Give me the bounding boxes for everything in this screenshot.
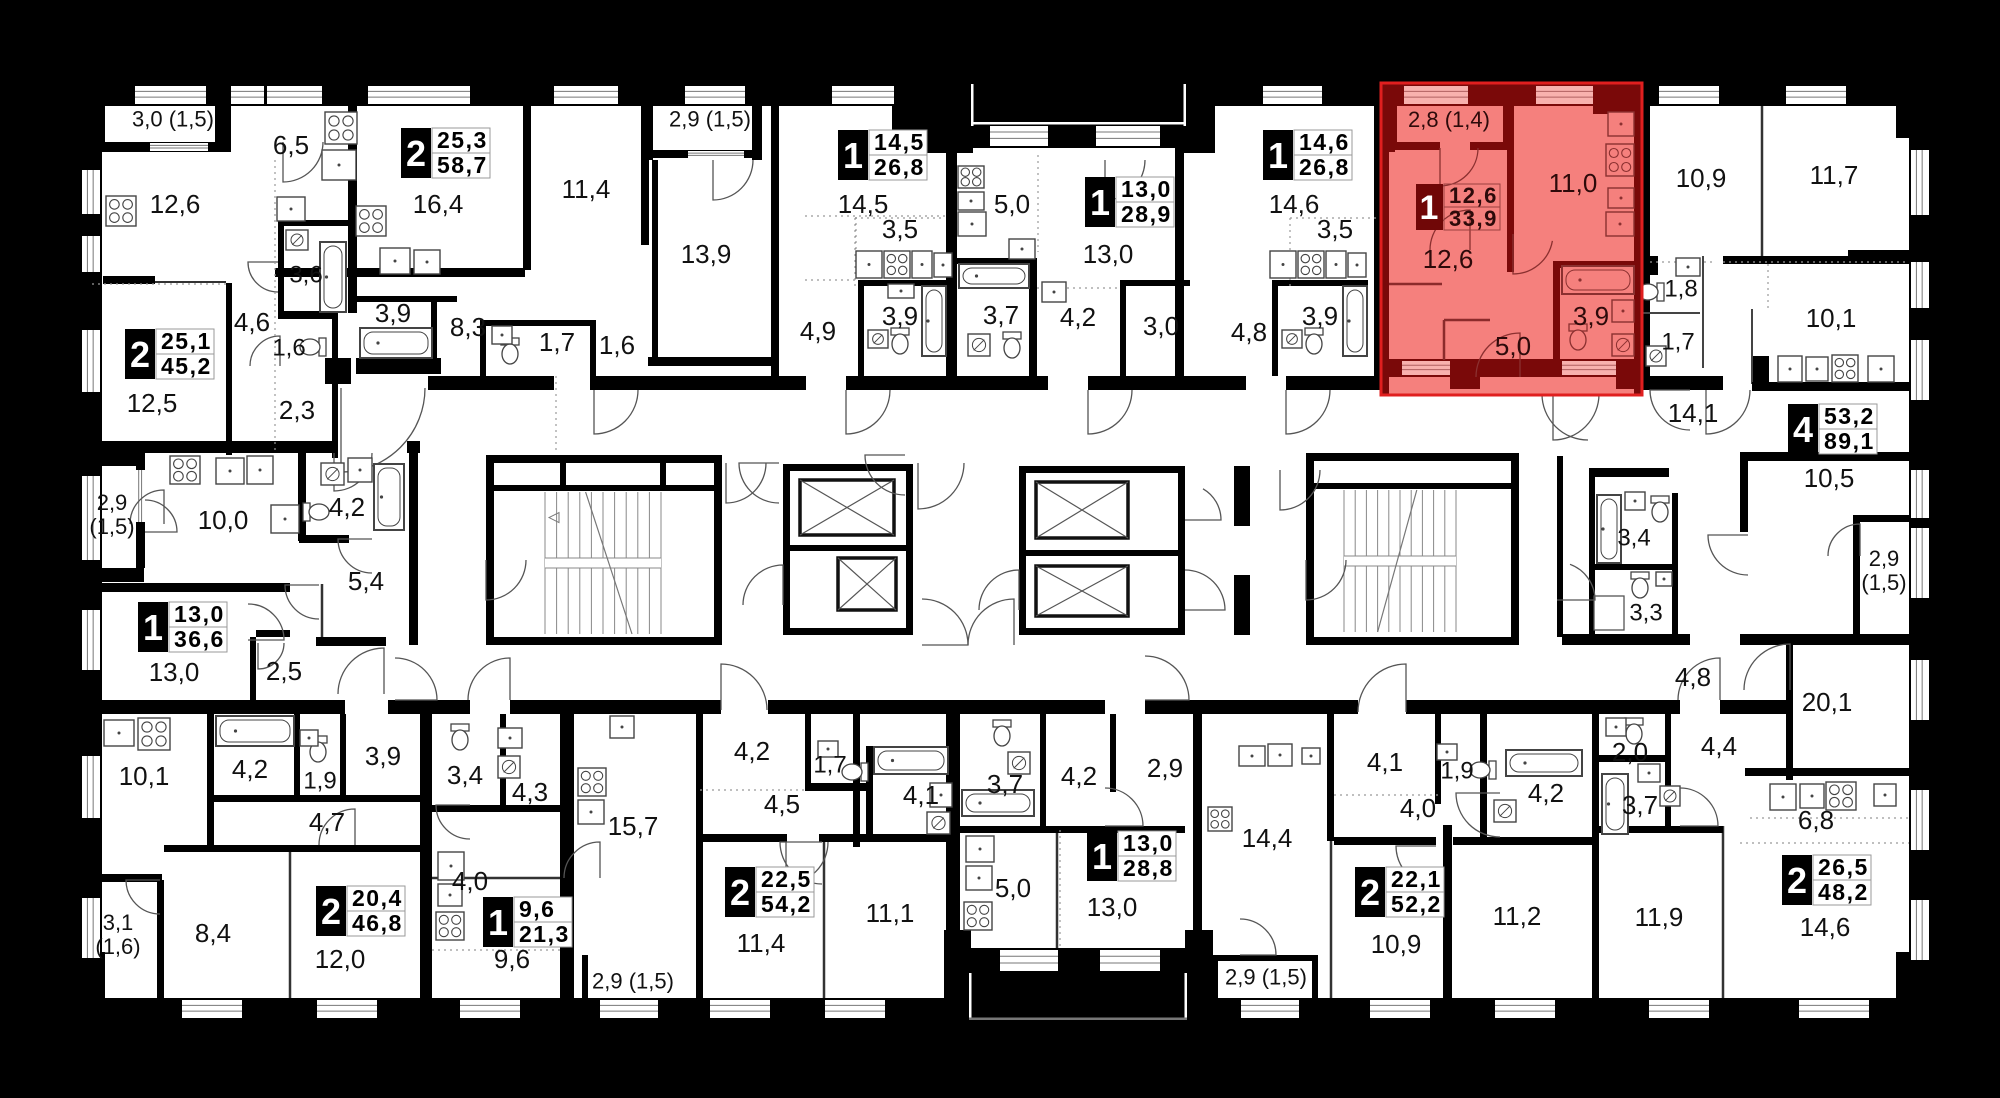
svg-text:12,0: 12,0 <box>315 944 366 974</box>
svg-text:48,2: 48,2 <box>1818 879 1869 905</box>
svg-text:22,5: 22,5 <box>761 866 812 892</box>
svg-text:2,9: 2,9 <box>1147 753 1183 783</box>
svg-text:1,7: 1,7 <box>539 327 575 357</box>
svg-text:(1,6): (1,6) <box>95 934 140 959</box>
svg-text:4,6: 4,6 <box>234 307 270 337</box>
svg-text:2,8 (1,4): 2,8 (1,4) <box>1408 107 1490 132</box>
svg-text:1,7: 1,7 <box>813 751 846 778</box>
svg-text:3,9: 3,9 <box>1302 301 1338 331</box>
svg-text:5,0: 5,0 <box>994 189 1030 219</box>
svg-text:1: 1 <box>1092 836 1112 877</box>
svg-text:14,6: 14,6 <box>1800 912 1851 942</box>
svg-text:13,9: 13,9 <box>681 239 732 269</box>
svg-text:4,7: 4,7 <box>309 807 345 837</box>
svg-text:5,0: 5,0 <box>1495 331 1531 361</box>
svg-text:4,2: 4,2 <box>1061 761 1097 791</box>
svg-text:4,1: 4,1 <box>903 780 939 810</box>
svg-text:5,0: 5,0 <box>995 873 1031 903</box>
svg-text:2: 2 <box>1360 872 1380 913</box>
svg-text:3,1: 3,1 <box>103 910 134 935</box>
svg-text:3,9: 3,9 <box>882 301 918 331</box>
svg-text:10,1: 10,1 <box>119 761 170 791</box>
svg-text:13,0: 13,0 <box>1083 239 1134 269</box>
svg-text:13,0: 13,0 <box>149 657 200 687</box>
svg-text:1: 1 <box>143 607 163 648</box>
svg-text:20,1: 20,1 <box>1802 687 1853 717</box>
svg-text:10,0: 10,0 <box>198 505 249 535</box>
svg-text:89,1: 89,1 <box>1824 428 1875 454</box>
svg-text:20,4: 20,4 <box>352 885 403 911</box>
svg-text:45,2: 45,2 <box>161 353 212 379</box>
svg-text:3,9: 3,9 <box>365 741 401 771</box>
svg-text:1: 1 <box>843 135 863 176</box>
svg-text:6,5: 6,5 <box>273 130 309 160</box>
svg-text:4,5: 4,5 <box>764 789 800 819</box>
svg-text:10,9: 10,9 <box>1371 929 1422 959</box>
svg-text:2,9: 2,9 <box>1869 546 1900 571</box>
svg-text:1: 1 <box>1090 182 1110 223</box>
svg-text:26,8: 26,8 <box>874 154 925 180</box>
svg-text:1,6: 1,6 <box>272 334 305 361</box>
svg-text:11,2: 11,2 <box>1493 901 1542 931</box>
svg-text:22,1: 22,1 <box>1391 866 1442 892</box>
svg-text:3,0 (1,5): 3,0 (1,5) <box>132 107 214 132</box>
svg-text:3,9: 3,9 <box>1573 301 1609 331</box>
svg-text:3,9: 3,9 <box>375 298 411 328</box>
svg-text:4,1: 4,1 <box>1367 747 1403 777</box>
svg-text:10,9: 10,9 <box>1676 163 1727 193</box>
svg-text:4: 4 <box>1793 409 1813 450</box>
svg-text:1: 1 <box>1268 135 1288 176</box>
svg-text:4,8: 4,8 <box>1675 662 1711 692</box>
svg-text:11,4: 11,4 <box>737 928 786 958</box>
svg-text:53,2: 53,2 <box>1824 403 1875 429</box>
svg-text:2: 2 <box>130 334 150 375</box>
svg-text:3,7: 3,7 <box>987 769 1023 799</box>
svg-text:4,2: 4,2 <box>232 754 268 784</box>
svg-text:13,0: 13,0 <box>174 601 225 627</box>
svg-text:13,0: 13,0 <box>1123 830 1174 856</box>
svg-text:14,4: 14,4 <box>1242 823 1293 853</box>
svg-text:14,1: 14,1 <box>1668 398 1719 428</box>
svg-text:3,3: 3,3 <box>1629 599 1662 626</box>
svg-text:4,8: 4,8 <box>1231 317 1267 347</box>
svg-text:46,8: 46,8 <box>352 910 403 936</box>
svg-text:9,6: 9,6 <box>519 896 555 922</box>
svg-text:2,3: 2,3 <box>279 395 315 425</box>
svg-text:15,7: 15,7 <box>608 811 659 841</box>
svg-text:4,0: 4,0 <box>1400 793 1436 823</box>
svg-text:4,3: 4,3 <box>512 777 548 807</box>
svg-text:3,5: 3,5 <box>882 214 918 244</box>
svg-text:8,4: 8,4 <box>195 918 231 948</box>
svg-text:3,4: 3,4 <box>447 760 483 790</box>
svg-text:2,0: 2,0 <box>1612 737 1648 767</box>
svg-text:11,4: 11,4 <box>562 174 611 204</box>
svg-text:2,9 (1,5): 2,9 (1,5) <box>1225 965 1307 990</box>
svg-text:2,5: 2,5 <box>266 656 302 686</box>
svg-text:1,7: 1,7 <box>1661 328 1694 355</box>
svg-text:4,0: 4,0 <box>452 866 488 896</box>
svg-text:36,6: 36,6 <box>174 626 225 652</box>
svg-text:2,9 (1,5): 2,9 (1,5) <box>592 969 674 994</box>
svg-text:28,8: 28,8 <box>1123 855 1174 881</box>
svg-text:12,5: 12,5 <box>127 388 178 418</box>
svg-text:12,6: 12,6 <box>1449 183 1498 208</box>
svg-text:10,1: 10,1 <box>1806 303 1857 333</box>
svg-text:54,2: 54,2 <box>761 891 812 917</box>
svg-text:52,2: 52,2 <box>1391 891 1442 917</box>
svg-text:26,8: 26,8 <box>1299 154 1350 180</box>
svg-text:12,6: 12,6 <box>1423 244 1474 274</box>
svg-text:1: 1 <box>1420 189 1439 227</box>
svg-text:1,6: 1,6 <box>599 330 635 360</box>
svg-text:2: 2 <box>1787 860 1807 901</box>
svg-text:11,0: 11,0 <box>1549 168 1598 198</box>
svg-text:5,4: 5,4 <box>348 566 384 596</box>
svg-text:11,7: 11,7 <box>1810 160 1859 190</box>
svg-text:8,3: 8,3 <box>450 312 486 342</box>
svg-text:4,2: 4,2 <box>734 736 770 766</box>
svg-text:25,1: 25,1 <box>161 328 212 354</box>
svg-text:2,9: 2,9 <box>97 490 128 515</box>
svg-text:9,6: 9,6 <box>494 944 530 974</box>
svg-text:(1,5): (1,5) <box>1861 570 1906 595</box>
svg-text:14,6: 14,6 <box>1269 189 1320 219</box>
svg-text:2: 2 <box>730 872 750 913</box>
svg-text:4,9: 4,9 <box>800 316 836 346</box>
svg-text:4,2: 4,2 <box>329 492 365 522</box>
svg-text:10,5: 10,5 <box>1804 463 1855 493</box>
svg-text:58,7: 58,7 <box>437 152 488 178</box>
svg-text:4,4: 4,4 <box>1701 731 1737 761</box>
svg-text:4,2: 4,2 <box>1528 778 1564 808</box>
svg-text:1: 1 <box>488 902 508 943</box>
svg-text:6,8: 6,8 <box>1798 805 1834 835</box>
svg-text:14,5: 14,5 <box>874 129 925 155</box>
svg-text:2: 2 <box>406 133 426 174</box>
svg-text:3,6: 3,6 <box>289 261 322 288</box>
svg-text:25,3: 25,3 <box>437 127 488 153</box>
svg-text:13,0: 13,0 <box>1087 892 1138 922</box>
svg-text:12,6: 12,6 <box>150 189 201 219</box>
svg-text:16,4: 16,4 <box>413 189 464 219</box>
svg-text:26,5: 26,5 <box>1818 854 1869 880</box>
svg-text:4,2: 4,2 <box>1060 302 1096 332</box>
svg-text:3,7: 3,7 <box>1622 790 1658 820</box>
svg-text:11,9: 11,9 <box>1635 902 1684 932</box>
svg-text:33,9: 33,9 <box>1449 206 1498 231</box>
svg-text:2: 2 <box>321 891 341 932</box>
svg-text:1,9: 1,9 <box>1440 757 1473 784</box>
svg-text:11,1: 11,1 <box>866 898 915 928</box>
svg-text:3,7: 3,7 <box>983 300 1019 330</box>
svg-text:14,6: 14,6 <box>1299 129 1350 155</box>
svg-text:2,9 (1,5): 2,9 (1,5) <box>669 107 751 132</box>
svg-text:28,9: 28,9 <box>1121 201 1172 227</box>
svg-text:14,5: 14,5 <box>838 189 889 219</box>
svg-text:3,5: 3,5 <box>1317 214 1353 244</box>
svg-text:21,3: 21,3 <box>519 921 570 947</box>
svg-text:13,0: 13,0 <box>1121 176 1172 202</box>
svg-text:1,9: 1,9 <box>303 767 336 794</box>
svg-text:3,0: 3,0 <box>1143 311 1179 341</box>
svg-text:3,4: 3,4 <box>1617 524 1650 551</box>
svg-text:1,8: 1,8 <box>1664 275 1697 302</box>
svg-text:(1,5): (1,5) <box>89 514 134 539</box>
